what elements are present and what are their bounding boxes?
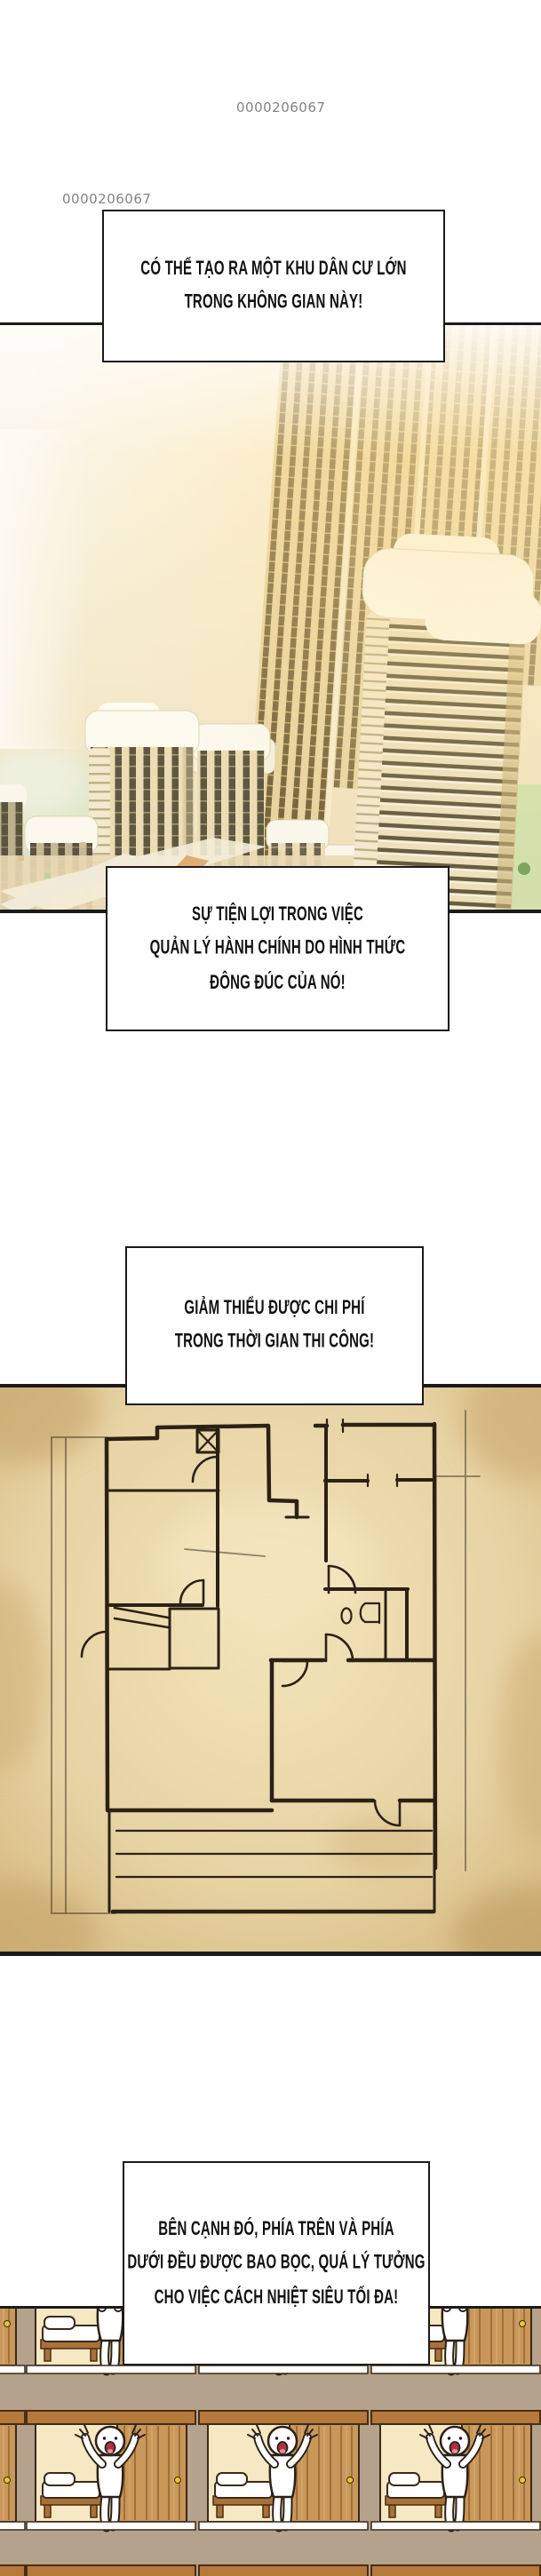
speech-bubble-text: CÓ THỂ TẠO RA MỘT KHU DÂN CƯ LỚN TRONG K… bbox=[104, 252, 443, 320]
panel-floorplan-image bbox=[0, 1384, 541, 1956]
panel-cityscape-image bbox=[0, 322, 541, 913]
speech-bubble-1: CÓ THỂ TẠO RA MỘT KHU DÂN CƯ LỚN TRONG K… bbox=[102, 210, 445, 362]
page-code-top: 0000206067 bbox=[236, 99, 325, 115]
speech-bubble-3: GIẢM THIỂU ĐƯỢC CHI PHÍ TRONG THỜI GIAN … bbox=[125, 1246, 424, 1405]
speech-bubble-text: GIẢM THIỂU ĐƯỢC CHI PHÍ TRONG THỜI GIAN … bbox=[127, 1292, 422, 1359]
speech-bubble-text: SỰ TIỆN LỢI TRONG VIỆC QUẢN LÝ HÀNH CHÍN… bbox=[107, 898, 448, 999]
floorplan-illustration bbox=[0, 1384, 541, 1956]
speech-bubble-text: BÊN CẠNH ĐÓ, PHÍA TRÊN VÀ PHÍA DƯỚI ĐỀU … bbox=[124, 2213, 428, 2314]
page-code-left: 0000206067 bbox=[62, 191, 151, 207]
warm-tint bbox=[0, 322, 541, 913]
comic-page: 0000206067 0000206067 bbox=[0, 0, 541, 2576]
speech-bubble-4: BÊN CẠNH ĐÓ, PHÍA TRÊN VÀ PHÍA DƯỚI ĐỀU … bbox=[123, 2161, 430, 2365]
speech-bubble-2: SỰ TIỆN LỢI TRONG VIỆC QUẢN LÝ HÀNH CHÍN… bbox=[106, 866, 450, 1031]
cityscape-illustration bbox=[0, 322, 541, 913]
